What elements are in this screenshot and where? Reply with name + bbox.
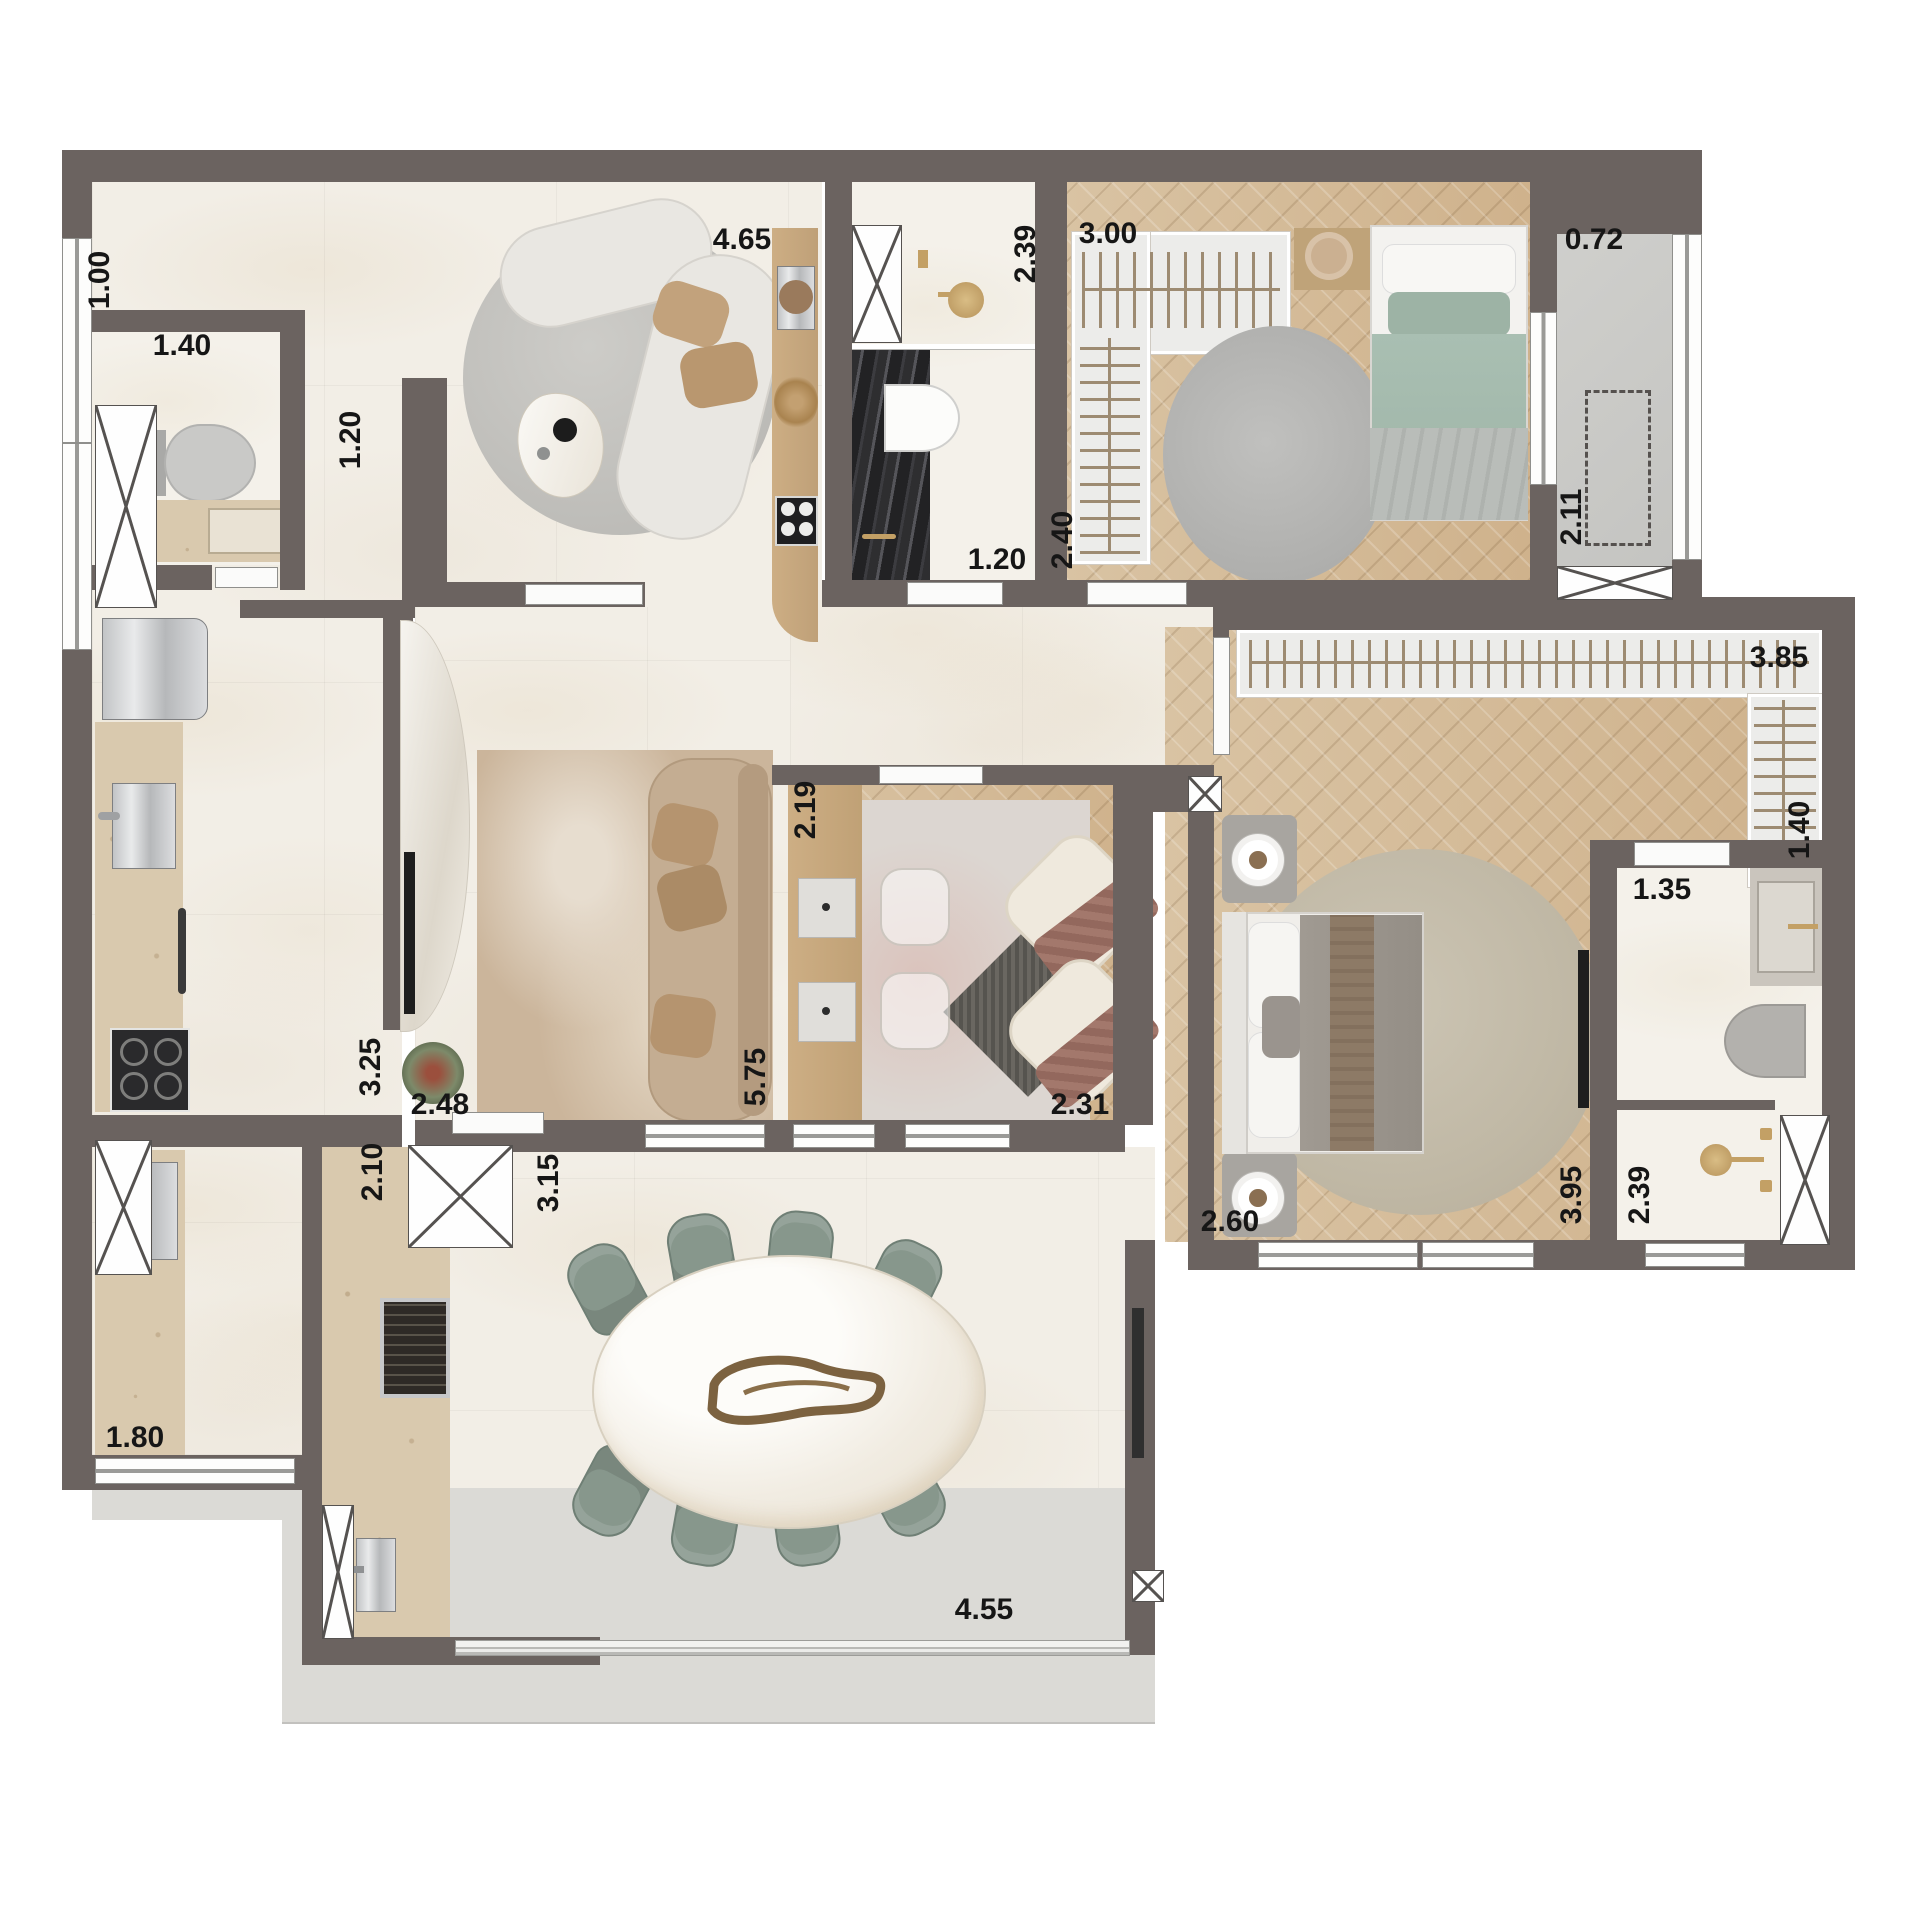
burner-icon <box>799 502 813 516</box>
table-decor-icon <box>553 418 577 442</box>
wall <box>302 1147 322 1640</box>
table-dot-icon <box>822 903 830 911</box>
shower-knob-icon <box>918 250 928 268</box>
door-master <box>1213 637 1230 755</box>
dimension-label: 1.40 <box>153 329 211 363</box>
faucet-icon <box>98 812 120 820</box>
table-dot-icon <box>822 1007 830 1015</box>
island-cooktop <box>775 496 818 546</box>
dimension-label: 3.25 <box>354 1038 388 1096</box>
window <box>1672 234 1702 560</box>
closet-rod-icon <box>1249 661 1809 664</box>
bed-pillow <box>1262 996 1300 1058</box>
dimension-label: 2.48 <box>411 1088 469 1122</box>
shower-arm-icon <box>1730 1157 1764 1162</box>
dried-plant-icon <box>774 376 818 428</box>
burner-icon <box>154 1072 182 1100</box>
dimension-label: 1.35 <box>1633 873 1691 907</box>
door-powder <box>215 567 278 588</box>
powder-sink <box>208 508 288 554</box>
fridge <box>102 618 208 720</box>
dimension-label: 4.65 <box>713 223 771 257</box>
window <box>645 1124 765 1148</box>
nightstand-lamp-icon <box>1305 232 1353 280</box>
shaft-hatch-icon <box>1780 1115 1830 1245</box>
cooktop <box>110 1028 190 1112</box>
nightstand-lamp-icon <box>1232 834 1284 886</box>
wall <box>1672 558 1702 598</box>
wall <box>825 182 852 582</box>
bed-pillow <box>1388 292 1510 336</box>
dimension-label: 2.60 <box>1201 1205 1259 1239</box>
dimension-label: 2.39 <box>1009 225 1043 283</box>
wall <box>1113 785 1153 1125</box>
dimension-label: 2.19 <box>789 781 823 839</box>
wall <box>402 378 447 607</box>
dimension-label: 3.15 <box>532 1154 566 1212</box>
toilet <box>1724 1004 1806 1078</box>
service-sink <box>356 1538 396 1612</box>
dimension-label: 1.20 <box>968 543 1026 577</box>
vanity-handle-icon <box>862 534 896 539</box>
window <box>1422 1242 1534 1268</box>
dimension-label: 2.40 <box>1046 511 1080 569</box>
dining-table <box>592 1255 986 1529</box>
toilet <box>164 424 256 502</box>
dimension-label: 2.10 <box>356 1143 390 1201</box>
shaft-hatch-icon <box>95 405 157 608</box>
closet-rod-icon <box>1108 338 1111 554</box>
gold-basin-icon <box>948 282 984 318</box>
hall-floor <box>790 600 1214 770</box>
burner-icon <box>120 1038 148 1066</box>
glass-panel <box>1132 1308 1144 1458</box>
shower-divider <box>852 344 1035 349</box>
shower-knob-icon <box>1760 1180 1772 1192</box>
dimension-label: 2.39 <box>1623 1166 1657 1224</box>
table-decor-icon <box>537 447 550 460</box>
dimension-label: 3.85 <box>1750 641 1808 675</box>
grill-grate-icon <box>380 1298 450 1398</box>
wall <box>1617 1100 1775 1110</box>
toilet <box>884 384 960 452</box>
window <box>1645 1243 1745 1267</box>
burner-icon <box>154 1038 182 1066</box>
dimension-label: 4.55 <box>955 1593 1013 1627</box>
window <box>1258 1242 1418 1268</box>
window <box>62 443 92 650</box>
table-centerpiece-icon <box>594 1257 984 1527</box>
burner-icon <box>781 502 795 516</box>
bed-headboard <box>1222 912 1248 1154</box>
dimension-label: 1.00 <box>83 251 117 309</box>
terrace-floor-left <box>92 1488 282 1520</box>
hanger-rack-icon <box>1249 640 1809 688</box>
shaft-hatch-icon <box>1557 566 1673 600</box>
floor-plan: 1.00 4.65 2.39 3.00 0.72 1.40 1.20 1.20 … <box>0 0 1920 1920</box>
sliding-door-laundry <box>95 1458 295 1484</box>
wall <box>62 182 92 240</box>
shaft-hatch-icon <box>1188 776 1222 812</box>
window <box>793 1124 875 1148</box>
wall <box>1590 868 1617 1242</box>
wall <box>280 310 305 590</box>
door-tv-room <box>879 766 983 784</box>
shaft-hatch-icon <box>322 1505 354 1639</box>
wall <box>62 648 92 1460</box>
window <box>905 1124 1010 1148</box>
tv-screen-icon <box>1578 950 1589 1108</box>
dimension-label: 0.72 <box>1565 223 1623 257</box>
dimension-label: 3.00 <box>1079 217 1137 251</box>
dimension-label: 3.95 <box>1555 1166 1589 1224</box>
bed-pillow <box>1382 244 1516 294</box>
door-bathroom <box>907 582 1003 605</box>
ac-unit-dashed-box <box>1585 390 1651 546</box>
shaft-hatch-icon <box>95 1140 152 1275</box>
dimension-label: 2.31 <box>1051 1088 1109 1122</box>
door-master-bath <box>1634 842 1730 866</box>
shaft-hatch-icon <box>408 1145 513 1248</box>
tv-screen-icon <box>404 852 415 1014</box>
shaft-hatch-icon <box>1132 1570 1164 1602</box>
wall <box>1530 182 1557 312</box>
shaft-hatch-icon <box>852 225 902 343</box>
burner-icon <box>799 522 813 536</box>
burner-icon <box>120 1072 148 1100</box>
closet-rod-icon <box>1082 288 1280 291</box>
kitchen-sink <box>112 783 176 869</box>
wall <box>1188 770 1214 1242</box>
door-kitchen <box>525 584 643 605</box>
wall <box>1530 485 1557 597</box>
bed-blanket <box>1370 428 1528 520</box>
cutting-board-icon <box>779 280 813 314</box>
ghost-chair <box>880 972 950 1050</box>
dimension-label: 1.40 <box>1783 801 1817 859</box>
sofa-pillow <box>648 992 718 1060</box>
shower-knob-icon <box>1760 1128 1772 1140</box>
door-bedroom1 <box>1087 582 1187 605</box>
dimension-label: 2.11 <box>1555 489 1589 546</box>
ghost-chair <box>880 868 950 946</box>
bed-runner <box>1330 915 1374 1151</box>
dimension-label: 1.80 <box>106 1421 164 1455</box>
wall <box>62 150 1702 182</box>
dimension-label: 5.75 <box>739 1048 773 1106</box>
window <box>1530 312 1557 485</box>
burner-icon <box>781 522 795 536</box>
wall <box>240 600 415 618</box>
gold-faucet-icon <box>1788 924 1818 929</box>
bedroom1-rug <box>1163 326 1391 584</box>
dimension-label: 1.20 <box>334 411 368 469</box>
sliding-door-terrace <box>455 1640 1130 1656</box>
shower-head-icon <box>1700 1144 1732 1176</box>
oven-handle-icon <box>178 908 186 994</box>
